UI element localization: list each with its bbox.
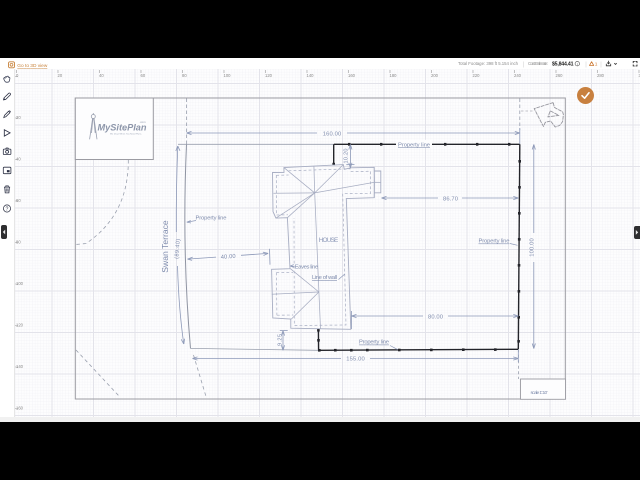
- svg-text:40.00: 40.00: [221, 254, 236, 261]
- svg-text:80: 80: [182, 73, 187, 78]
- svg-text:Eaves line: Eaves line: [295, 265, 319, 271]
- svg-text:Line of wall: Line of wall: [312, 275, 337, 281]
- svg-text:40: 40: [99, 73, 104, 78]
- svg-text:0: 0: [16, 73, 19, 78]
- svg-text:220: 220: [473, 73, 481, 78]
- svg-text:40: 40: [16, 157, 21, 162]
- svg-text:160: 160: [348, 73, 356, 78]
- svg-text:155.00: 155.00: [346, 356, 365, 362]
- svg-text:10.20: 10.20: [344, 149, 350, 164]
- svg-text:160.00: 160.00: [323, 131, 342, 137]
- svg-text:scale 1':10': scale 1':10': [531, 390, 548, 396]
- svg-text:240: 240: [514, 73, 522, 78]
- svg-text:260: 260: [556, 73, 564, 78]
- svg-text:140: 140: [16, 364, 24, 369]
- svg-text:(89.40): (89.40): [174, 239, 182, 260]
- svg-text:9.25: 9.25: [278, 334, 284, 346]
- svg-text:100: 100: [16, 281, 24, 286]
- svg-text:.com: .com: [140, 120, 147, 124]
- svg-text:100: 100: [224, 73, 232, 78]
- svg-text:Property line: Property line: [196, 216, 227, 222]
- svg-text:HOUSE: HOUSE: [319, 237, 339, 244]
- svg-text:120: 120: [265, 73, 273, 78]
- svg-text:100.00: 100.00: [530, 238, 536, 257]
- svg-text:Property line: Property line: [359, 340, 389, 346]
- svg-text:120: 120: [16, 323, 24, 328]
- svg-text:80.00: 80.00: [428, 314, 443, 320]
- svg-text:60: 60: [141, 73, 146, 78]
- svg-text:Swan Terrace: Swan Terrace: [160, 220, 170, 273]
- svg-text:140: 140: [307, 73, 315, 78]
- svg-text:200: 200: [431, 73, 439, 78]
- svg-text:160: 160: [16, 406, 24, 411]
- svg-text:20: 20: [58, 73, 63, 78]
- svg-text:We Draw When You Need Plans: We Draw When You Need Plans: [110, 133, 142, 136]
- svg-text:180: 180: [390, 73, 398, 78]
- svg-text:MySitePlan: MySitePlan: [98, 123, 147, 133]
- svg-text:60: 60: [16, 198, 21, 203]
- svg-text:80: 80: [16, 240, 21, 245]
- svg-text:Property line: Property line: [479, 239, 510, 245]
- svg-text:20: 20: [16, 115, 21, 120]
- svg-text:280: 280: [597, 73, 605, 78]
- svg-text:86.70: 86.70: [443, 196, 458, 202]
- svg-text:Property line: Property line: [398, 142, 430, 148]
